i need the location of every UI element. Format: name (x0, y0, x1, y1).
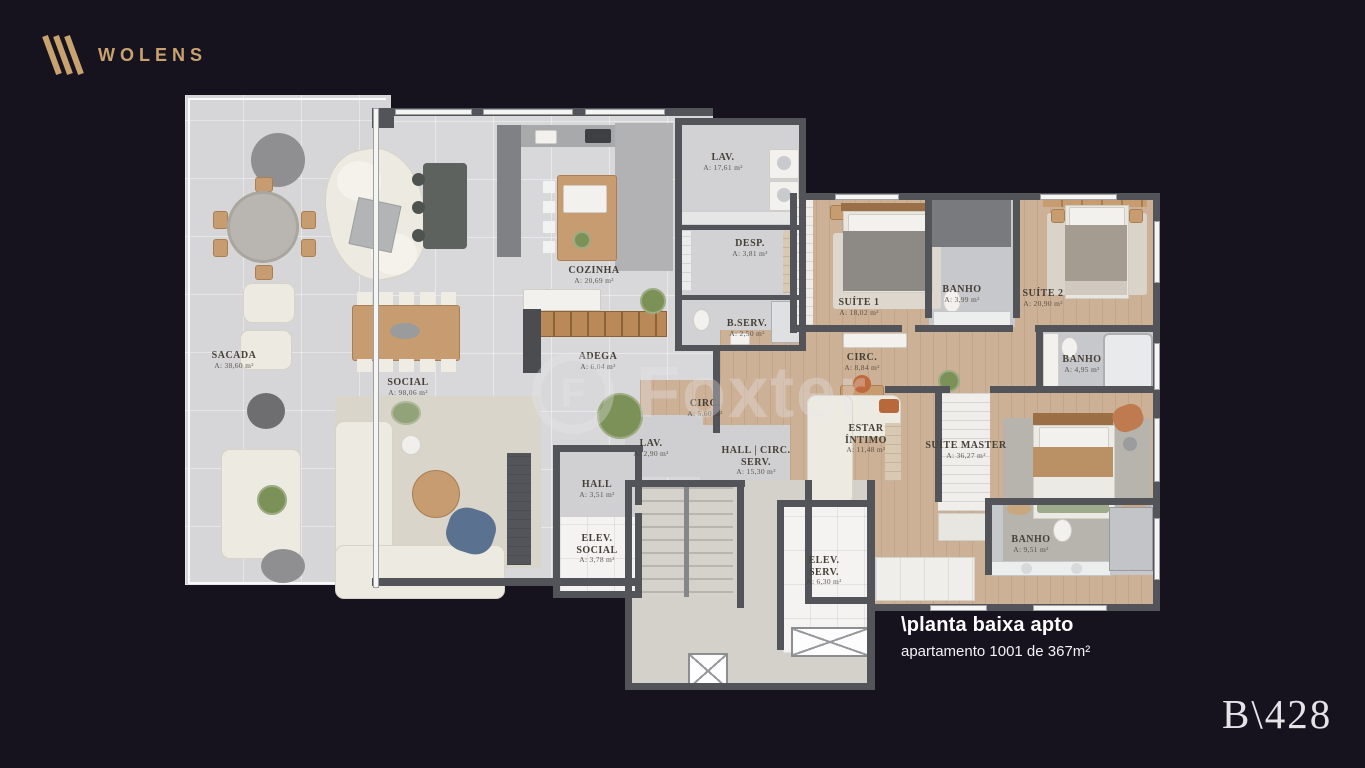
wall (925, 200, 932, 318)
side-table (401, 435, 421, 455)
dryer-door (777, 188, 791, 202)
stair-rail (684, 487, 689, 597)
window (483, 109, 573, 115)
wall (675, 295, 805, 300)
shaft (791, 627, 869, 657)
window-glass-wall (373, 108, 379, 588)
room-label: SUÍTE MASTERA: 36,27 m² (925, 440, 1006, 460)
island-stools (543, 181, 555, 253)
room-label: DESP.A: 3,81 m² (732, 238, 767, 258)
wall (1035, 325, 1160, 332)
wall (867, 480, 875, 690)
plant (257, 485, 287, 515)
adega-counter (523, 289, 601, 311)
brand-logo: WOLENS (40, 34, 207, 76)
watermark: F Foxter (532, 352, 868, 434)
sink (535, 130, 557, 144)
wine-rack (537, 311, 667, 337)
wall (790, 325, 902, 332)
blanket (1065, 225, 1127, 281)
stool (412, 229, 425, 242)
room-label: BANHOA: 9,51 m² (1011, 534, 1050, 554)
vanity (1043, 333, 1059, 387)
washer-door (777, 156, 791, 170)
window (585, 109, 665, 115)
toilet (1053, 519, 1072, 542)
window (1154, 418, 1160, 482)
chair (255, 177, 273, 192)
caption-title: \planta baixa apto (901, 614, 1090, 637)
shelf-unit (507, 453, 531, 565)
room-label: ELEV. SOCIALA: 3,78 m² (568, 533, 626, 565)
room-label: LAV.A: 17,61 m² (703, 152, 743, 172)
plant (640, 288, 666, 314)
bed-foot (1065, 281, 1127, 295)
island-cooktop (563, 185, 607, 213)
marble-wall (615, 123, 673, 271)
bathtub (1103, 333, 1153, 391)
wall (777, 500, 784, 650)
wall (625, 480, 745, 487)
blanket (1033, 447, 1113, 477)
sink (1021, 563, 1032, 574)
stone-console (423, 163, 467, 249)
column (261, 549, 305, 583)
pillows (848, 214, 928, 232)
room-label: SUÍTE 1A: 18,02 m² (838, 297, 879, 317)
window (1154, 221, 1160, 283)
wall (985, 498, 1157, 505)
pouf (391, 401, 421, 425)
wall (625, 683, 875, 690)
wall (675, 118, 682, 350)
wall (675, 345, 806, 351)
stool (412, 173, 425, 186)
window (1040, 194, 1117, 200)
wolens-mark-icon (40, 34, 84, 76)
window (930, 605, 987, 611)
window (1154, 518, 1160, 580)
window (1033, 605, 1107, 611)
blanket (843, 231, 931, 291)
cabinet-row (875, 557, 975, 601)
shower (1109, 507, 1153, 571)
kitchen-cabinet (497, 125, 521, 257)
wall (553, 445, 643, 452)
room-label: B.SERV.A: 2,50 m² (727, 318, 767, 338)
wall (635, 513, 642, 598)
wall (675, 225, 805, 230)
chair (255, 265, 273, 280)
throw-rust (879, 399, 899, 413)
pillows (1069, 207, 1125, 227)
laundry-counter (677, 211, 801, 225)
chair (301, 239, 316, 257)
bed-headboard (841, 203, 933, 211)
shoe-shelf (938, 513, 992, 541)
armchair (243, 283, 295, 323)
wall (675, 118, 806, 125)
wall (915, 325, 1013, 332)
toilet (693, 309, 710, 331)
wall (990, 386, 1160, 393)
dresser (843, 333, 907, 348)
room-label: BANHOA: 3,99 m² (942, 284, 981, 304)
room-label: SACADAA: 38,60 m² (212, 350, 257, 370)
vanity-double (991, 561, 1111, 576)
caption: \planta baixa apto apartamento 1001 de 3… (901, 614, 1090, 660)
cooktop (585, 129, 611, 143)
wall (870, 604, 1160, 611)
window (835, 194, 899, 200)
window (1154, 343, 1160, 390)
stool (412, 201, 425, 214)
wall (790, 193, 797, 333)
room-label: LAV.A: 2,90 m² (633, 438, 668, 458)
room-label: SOCIALA: 98,06 m² (387, 377, 428, 397)
bed-headboard (1033, 413, 1113, 425)
round-table (227, 191, 299, 263)
room-label: HALL | CIRC. SERV.A: 15,30 m² (710, 445, 802, 477)
wall (1036, 330, 1043, 393)
watermark-text: Foxter (636, 357, 868, 429)
wall (553, 445, 560, 598)
wall (737, 480, 744, 608)
pillows (1039, 427, 1109, 449)
room-label: HALLA: 3,51 m² (579, 479, 614, 499)
stool (1123, 437, 1137, 451)
sink (1071, 563, 1082, 574)
chair (213, 239, 228, 257)
dining-chairs (357, 292, 457, 305)
room-label: ELEV. SERV.A: 6,30 m² (795, 555, 853, 587)
table-centerpiece (390, 323, 420, 339)
caption-subtitle: apartamento 1001 de 367m² (901, 643, 1090, 660)
nightstand (1129, 209, 1143, 223)
plant (573, 231, 591, 249)
side-table (247, 393, 285, 429)
brand-name: WOLENS (98, 45, 207, 66)
wall (1013, 200, 1020, 318)
watermark-logo-icon: F (532, 352, 614, 434)
round-coffee-table (412, 470, 460, 518)
wall (777, 500, 872, 507)
page-code: B\428 (1222, 690, 1332, 738)
chair (301, 211, 316, 229)
window (395, 109, 472, 115)
room-label: COZINHAA: 20,69 m² (568, 265, 619, 285)
room-label: BANHOA: 4,95 m² (1062, 354, 1101, 374)
wall (799, 118, 806, 350)
wall (625, 480, 632, 683)
nightstand (1051, 209, 1065, 223)
slide: WOLENS (0, 0, 1365, 768)
wall (372, 578, 640, 586)
shower (931, 199, 1011, 247)
chair (213, 211, 228, 229)
dining-chairs (357, 359, 457, 372)
room-label: SUÍTE 2A: 20,90 m² (1022, 288, 1063, 308)
wall (805, 597, 875, 604)
wall (985, 505, 992, 575)
